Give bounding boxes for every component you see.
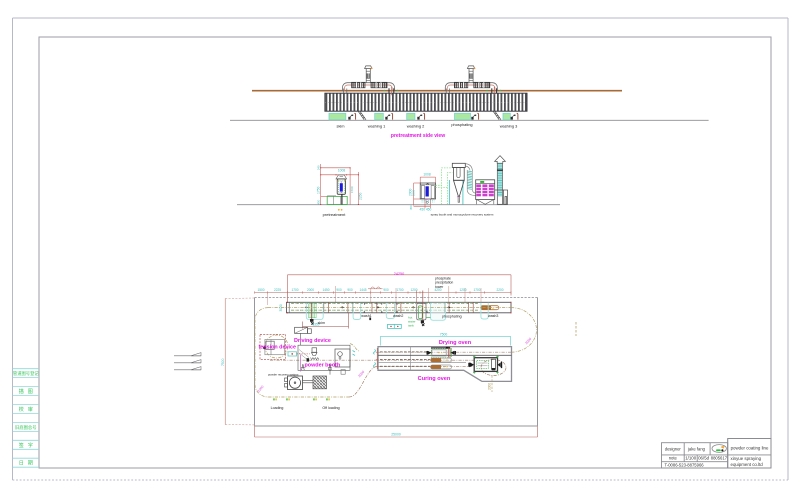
svg-text:tower: tower [435,285,444,289]
svg-text:2000: 2000 [307,288,314,292]
svg-text:tension device: tension device [259,345,296,351]
svg-text:washing 1: washing 1 [368,123,386,128]
svg-text:wash3: wash3 [488,314,498,318]
svg-text:1500: 1500 [350,186,354,193]
svg-text:xinyue spraying: xinyue spraying [731,456,762,461]
svg-text:日 期: 日 期 [19,461,33,467]
svg-text:450: 450 [409,205,413,210]
svg-text:phosphating: phosphating [442,314,462,318]
svg-text:spray booth and monocyclone re: spray booth and monocyclone recovery sys… [431,212,494,216]
svg-text:2200: 2200 [496,288,503,292]
svg-text:equipment co.ltd: equipment co.ltd [731,462,764,467]
svg-text:1450: 1450 [322,288,329,292]
svg-text:24250: 24250 [394,272,405,276]
svg-text:1008: 1008 [423,173,431,177]
svg-text:skim: skim [337,123,345,128]
svg-text:wash2: wash2 [393,314,403,318]
svg-text:skim: skim [318,321,325,325]
svg-text:powder coating line: powder coating line [731,445,769,450]
svg-text:240: 240 [317,165,321,170]
svg-text:note: note [669,455,678,460]
svg-text:1750: 1750 [317,186,321,194]
svg-text:签 字: 签 字 [19,442,33,449]
svg-text:1/100: 1/100 [685,456,697,461]
svg-text:washing 2: washing 2 [407,123,425,128]
svg-text:8805617: 8805617 [711,456,728,461]
svg-text:Curing oven: Curing oven [418,376,451,382]
svg-text:designer: designer [665,447,682,452]
svg-text:Drying oven: Drying oven [439,340,472,346]
svg-text:2225: 2225 [274,288,281,292]
svg-text:06/5d: 06/5d [698,456,710,461]
svg-text:450: 450 [426,208,432,212]
svg-text:1008: 1008 [338,168,346,172]
svg-text:1700: 1700 [473,288,480,292]
svg-text:T-0086-523-8875966: T-0086-523-8875966 [665,462,705,467]
svg-text:pretreatment side view: pretreatment side view [391,133,445,139]
svg-text:1445: 1445 [359,288,366,292]
svg-text:1500: 1500 [412,189,416,196]
svg-text:1700: 1700 [291,288,298,292]
svg-text:900: 900 [336,288,342,292]
svg-text:2250: 2250 [359,192,363,200]
svg-text:wash1: wash1 [361,314,371,318]
svg-text:1200: 1200 [459,288,466,292]
svg-text:900: 900 [347,288,353,292]
svg-text:7500: 7500 [440,332,448,336]
svg-text:25000: 25000 [391,432,401,436]
svg-text:pretreatment: pretreatment [323,212,347,217]
svg-text:2000: 2000 [488,383,492,390]
svg-text:jake fang: jake fang [687,447,706,452]
svg-text:1500: 1500 [257,288,264,292]
svg-text:450: 450 [420,208,426,212]
svg-text:powder booth: powder booth [305,362,341,368]
svg-text:tank: tank [408,324,414,328]
svg-text:Off loading: Off loading [322,406,339,410]
svg-text:旧底图总号: 旧底图总号 [15,424,36,431]
svg-text:描 图: 描 图 [19,388,33,395]
svg-text:phosphating: phosphating [451,122,472,127]
svg-text:Driving device: Driving device [294,338,331,344]
svg-text:washing 3: washing 3 [500,123,518,128]
svg-text:7500: 7500 [221,358,225,366]
svg-text:1700: 1700 [396,288,403,292]
svg-text:900: 900 [383,288,389,292]
svg-text:管道图号登记: 管道图号登记 [13,370,39,377]
svg-text:校 审: 校 审 [19,406,33,413]
svg-text:Loading: Loading [271,406,284,410]
svg-text:450: 450 [317,199,321,204]
